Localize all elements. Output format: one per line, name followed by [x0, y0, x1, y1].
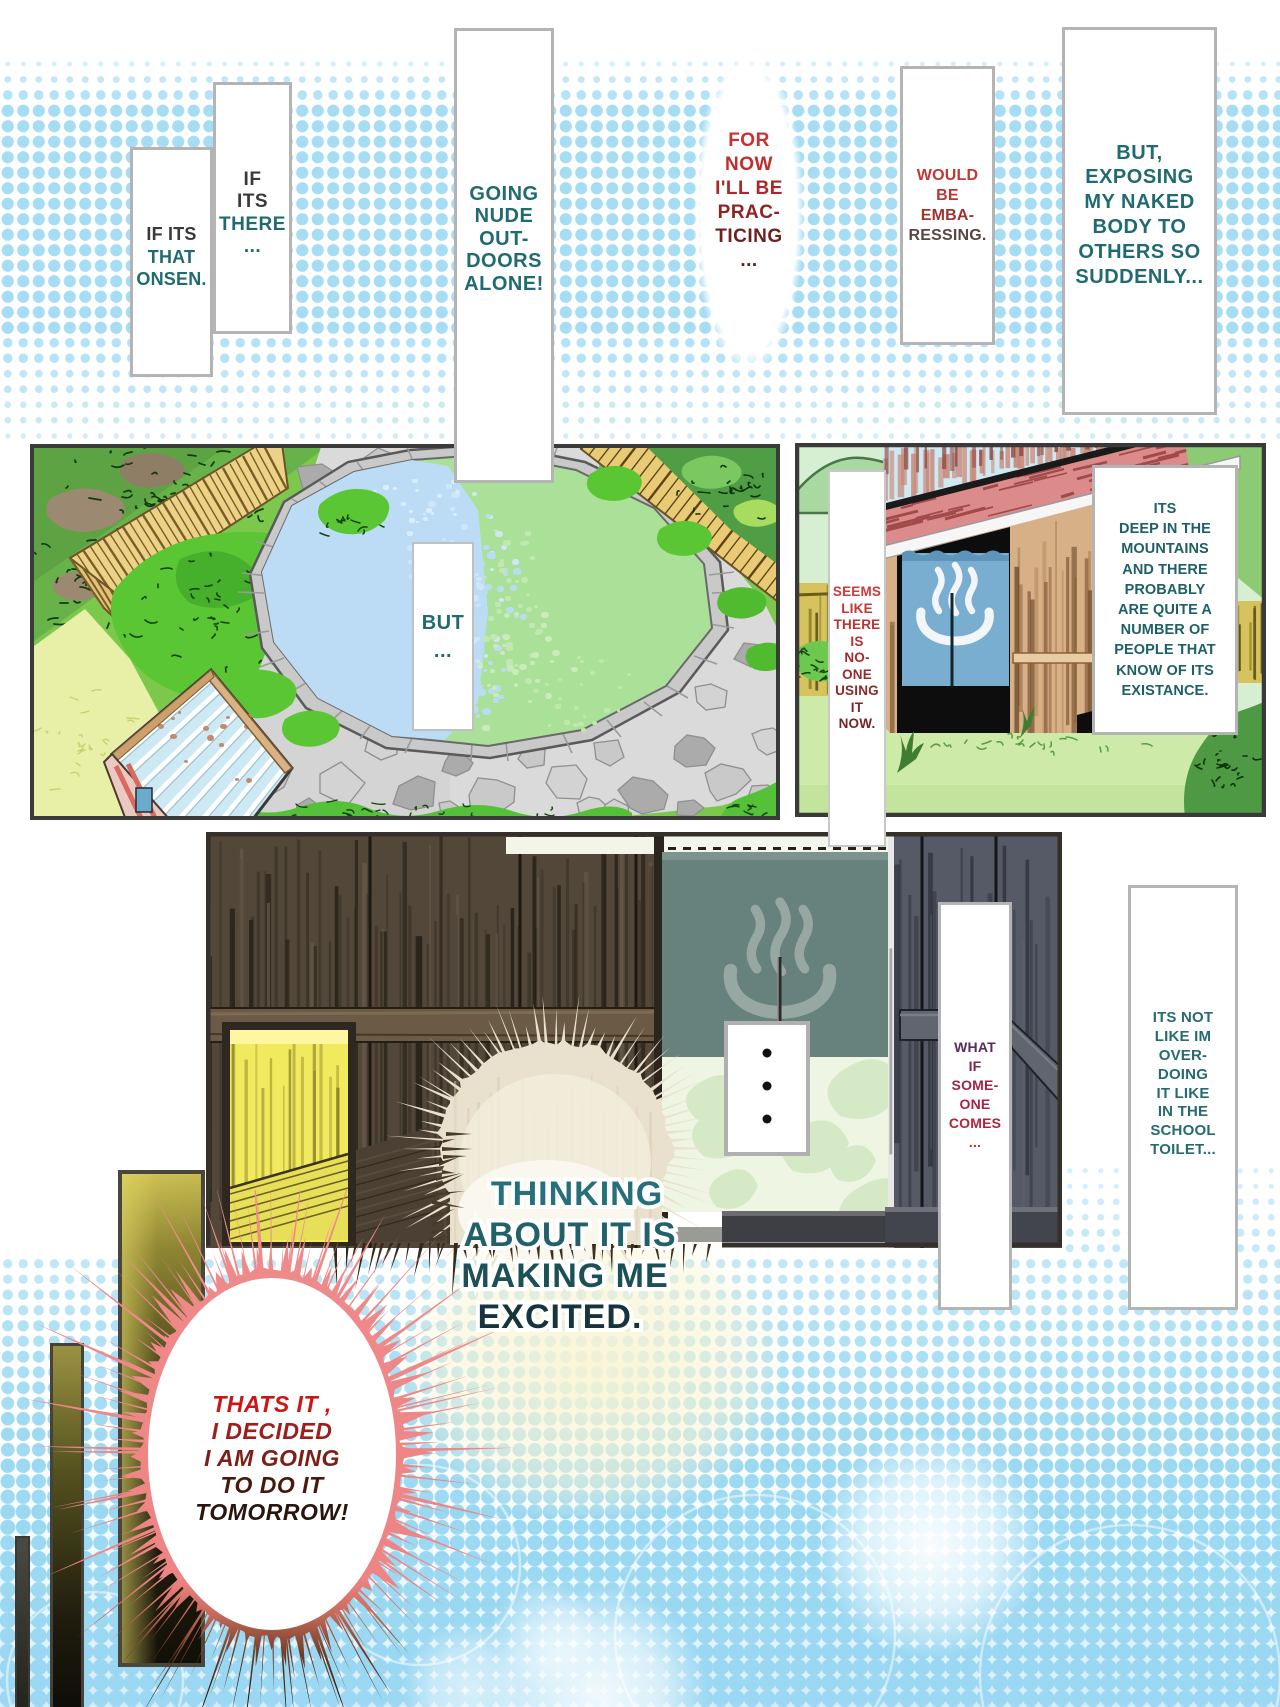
svg-text:ABOUT IT IS: ABOUT IT IS: [463, 1216, 676, 1254]
svg-text:EXCITED.: EXCITED.: [478, 1298, 643, 1336]
svg-text:MAKING ME: MAKING ME: [461, 1257, 668, 1295]
svg-text:THINKING: THINKING: [491, 1175, 663, 1213]
